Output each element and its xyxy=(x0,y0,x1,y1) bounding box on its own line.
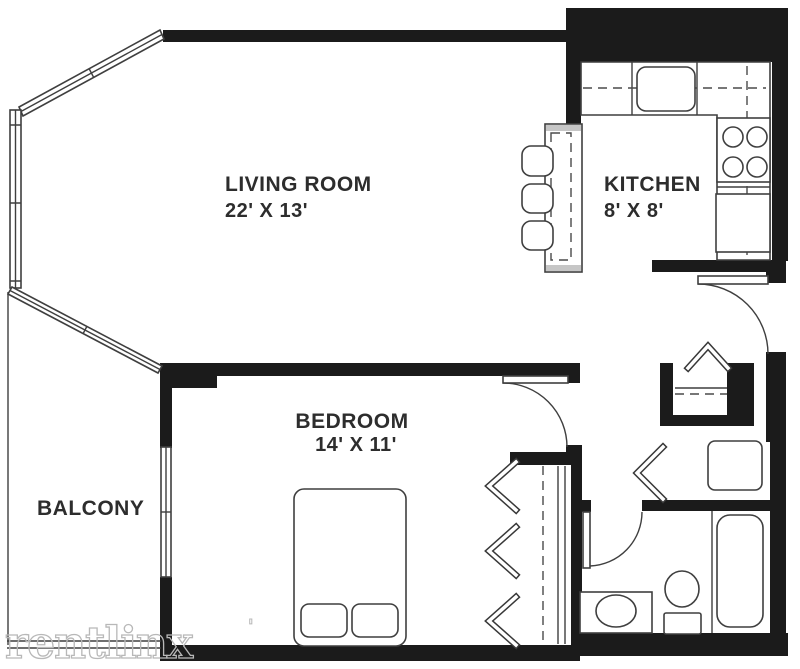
bar-stool xyxy=(522,184,553,213)
bedroom-closet-track xyxy=(558,466,565,644)
balcony-railing xyxy=(7,292,161,648)
bathtub xyxy=(717,515,763,627)
bedroom-dims: 14' X 11' xyxy=(315,434,397,456)
wall-top-living xyxy=(163,30,570,42)
toilet-bowl xyxy=(665,571,699,607)
bathroom-fixtures xyxy=(580,511,763,634)
closet-chevron-up xyxy=(688,346,728,368)
floor-plan: LIVING ROOM 22' X 13' KITCHEN 8' X 8' BE… xyxy=(0,0,800,669)
wall-kitchen-bottom xyxy=(652,260,770,272)
closet-chevron-linen xyxy=(637,447,663,499)
closet-chevron-2 xyxy=(489,527,516,575)
breakfast-bar-cap-bottom xyxy=(546,265,581,271)
refrigerator xyxy=(716,194,770,252)
wall-kitchen-left xyxy=(566,8,581,125)
bedroom-door xyxy=(503,376,568,383)
stove-burner xyxy=(747,127,767,147)
living-room-label: LIVING ROOM xyxy=(225,173,372,196)
pillow xyxy=(301,604,347,637)
stove-burner xyxy=(723,157,743,177)
bedroom-door-swing xyxy=(503,383,567,447)
kitchen-fixtures xyxy=(522,62,770,272)
kitchen-sink xyxy=(637,67,695,111)
watermark-text: rentlinx xyxy=(5,618,194,669)
wall-kitchen-right xyxy=(772,56,788,261)
stove-burner xyxy=(747,157,767,177)
closet-chevron-3 xyxy=(489,597,516,645)
bathroom-door-swing xyxy=(590,512,642,566)
kitchen-label: KITCHEN xyxy=(604,173,701,196)
floor-plan-page: LIVING ROOM 22' X 13' KITCHEN 8' X 8' BE… xyxy=(0,0,800,669)
wall-right-mid xyxy=(766,352,786,442)
bathroom-sink xyxy=(596,595,636,627)
wall-right-lower xyxy=(770,442,786,656)
breakfast-bar-cap-top xyxy=(546,125,581,131)
wall-bedroom-top xyxy=(160,363,578,376)
entry-door xyxy=(698,276,768,284)
wall-coat-closet-right-block xyxy=(727,363,754,426)
watermark: rentlinx ' xyxy=(5,616,254,669)
bar-stool xyxy=(522,221,553,250)
room-labels: LIVING ROOM 22' X 13' KITCHEN 8' X 8' BE… xyxy=(37,173,701,520)
pillow xyxy=(352,604,398,637)
wall-bath-bottom xyxy=(578,633,788,656)
closet-chevron-1 xyxy=(489,462,516,510)
bar-stool xyxy=(522,146,553,176)
wall-kitchen-top-block xyxy=(566,8,788,62)
bedroom-label: BEDROOM xyxy=(295,410,408,433)
stove-burner xyxy=(723,127,743,147)
linen-shelf xyxy=(708,441,762,490)
wall-bath-door-stub xyxy=(578,500,591,512)
bedroom-furniture xyxy=(294,489,406,646)
kitchen-dims: 8' X 8' xyxy=(604,200,664,222)
bay-windows xyxy=(8,30,171,577)
bathroom-door xyxy=(583,512,590,568)
toilet-tank xyxy=(664,613,701,634)
living-room-dims: 22' X 13' xyxy=(225,200,308,222)
watermark-mark: ' xyxy=(248,616,254,637)
balcony-label: BALCONY xyxy=(37,497,144,520)
wall-bedroom-left-upper xyxy=(160,363,172,448)
wall-entry-block xyxy=(766,260,786,283)
